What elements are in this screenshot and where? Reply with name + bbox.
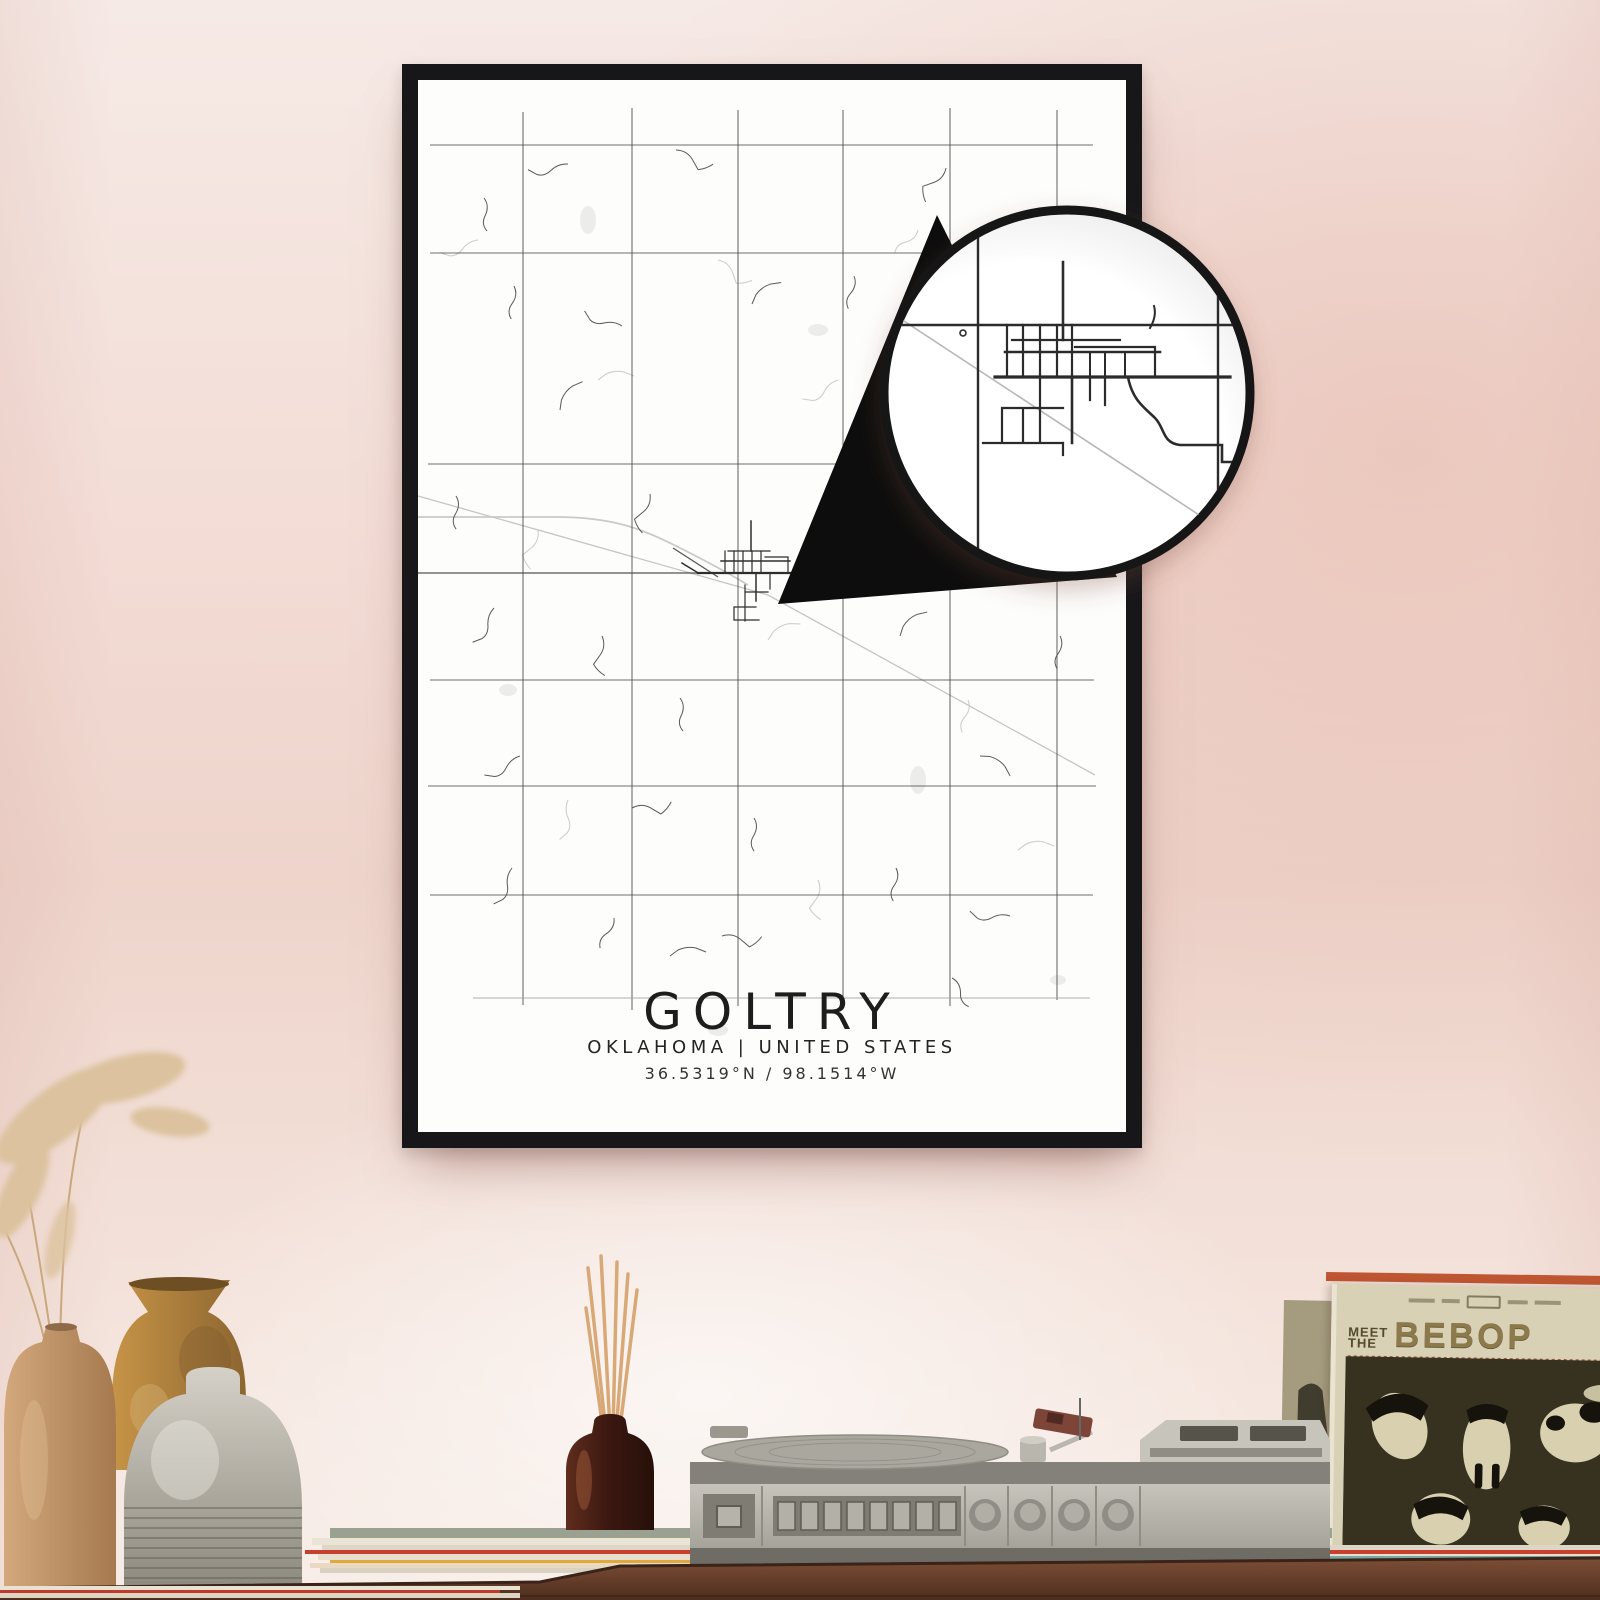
left-magazines — [0, 1586, 520, 1598]
lid-hinge — [710, 1426, 748, 1438]
diffuser-reeds — [586, 1256, 637, 1436]
room-scene: GOLTRY OKLAHOMA | UNITED STATES 36.5319°… — [0, 0, 1600, 1600]
tonearm — [1020, 1398, 1093, 1462]
preset-buttons — [773, 1496, 961, 1536]
vase-tan — [4, 1323, 116, 1592]
shelf-still-life — [0, 0, 1600, 1600]
power-button — [703, 1494, 755, 1538]
reed-diffuser — [566, 1256, 654, 1530]
cassette-panel — [1140, 1420, 1330, 1462]
